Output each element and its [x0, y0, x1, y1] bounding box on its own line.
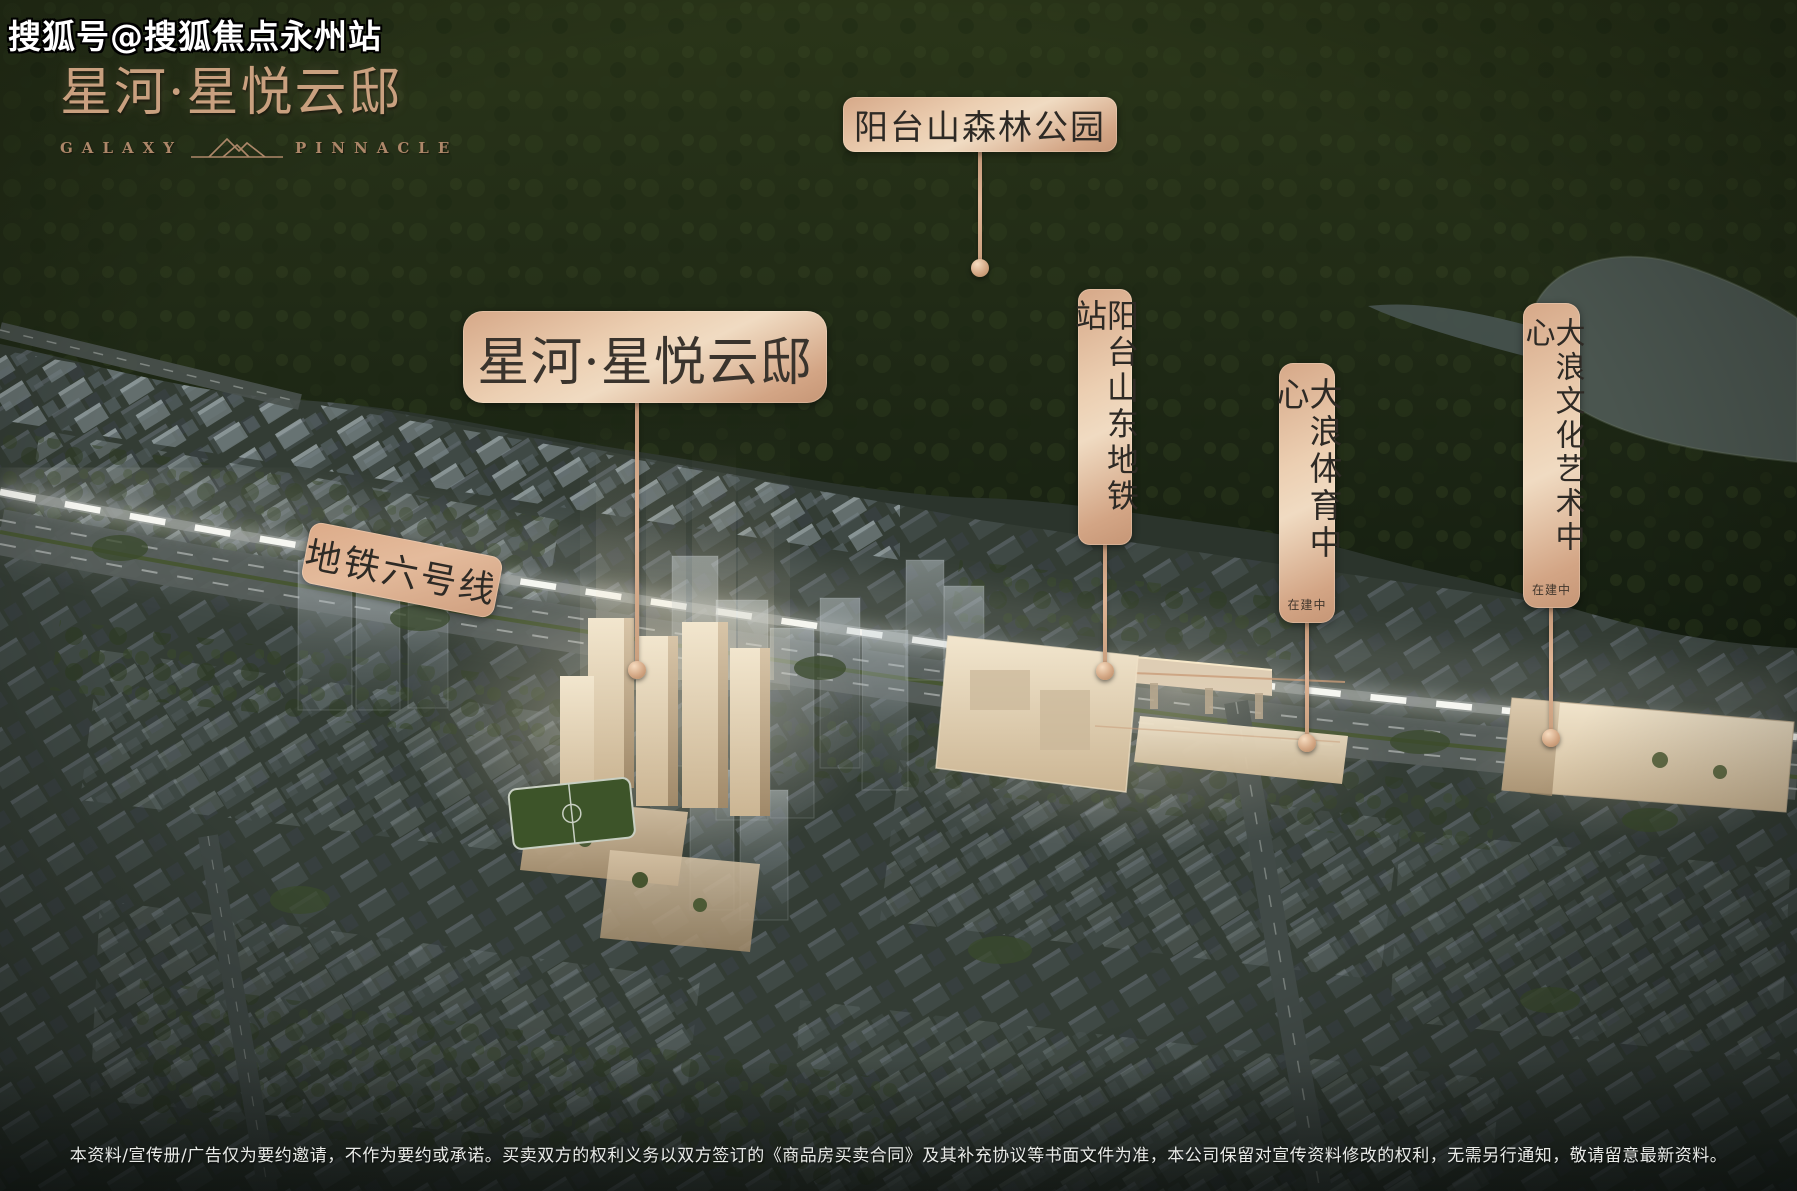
- brand-logo-pinnacle: PINNACLE: [295, 139, 458, 157]
- culture-center-leader-line: [1549, 608, 1553, 730]
- project-leader-line: [635, 403, 639, 662]
- forest-park-leader-line: [978, 152, 982, 261]
- sports-center-leader-line: [1305, 623, 1309, 735]
- callout-project: 星河·星悦云邸: [463, 311, 827, 403]
- project-leader-dot: [628, 661, 646, 679]
- callout-forest-park: 阳台山森林公园: [843, 97, 1117, 152]
- brand-logo-galaxy: GALAXY: [60, 139, 183, 157]
- metro-station-leader-dot: [1096, 662, 1114, 680]
- culture-center-status: 在建中: [1532, 581, 1571, 598]
- forest-park-label: 阳台山森林公园: [854, 100, 1106, 149]
- callout-sports-center: 大浪体育中心 在建中: [1279, 363, 1335, 623]
- culture-center-leader-dot: [1542, 729, 1560, 747]
- legal-disclaimer: 本资料/宣传册/广告仅为要约邀请，不作为要约或承诺。买卖双方的权利义务以双方签订…: [0, 1141, 1797, 1166]
- brand-logo: 星河·星悦云邸 GALAXY PINNACLE: [60, 50, 458, 165]
- callout-metro-station: 阳台山东地铁站: [1078, 289, 1132, 545]
- brand-logo-chinese: 星河·星悦云邸: [60, 50, 458, 125]
- metro-station-leader-line: [1103, 545, 1107, 663]
- metro-station-label: 阳台山东地铁站: [1073, 299, 1137, 545]
- culture-center-label: 大浪文化艺术中心: [1522, 317, 1582, 581]
- callout-culture-center: 大浪文化艺术中心 在建中: [1523, 303, 1580, 608]
- brand-logo-english: GALAXY PINNACLE: [60, 131, 458, 165]
- promo-aerial-map: 搜狐号@搜狐焦点永州站 星河·星悦云邸 GALAXY PINNACLE 阳台山森…: [0, 0, 1797, 1191]
- sports-center-leader-dot: [1298, 734, 1316, 752]
- mountain-icon: [189, 131, 285, 165]
- sports-center-label: 大浪体育中心: [1274, 377, 1340, 596]
- forest-park-leader-dot: [971, 259, 989, 277]
- sports-center-status: 在建中: [1287, 596, 1326, 613]
- project-label: 星河·星悦云邸: [477, 320, 813, 395]
